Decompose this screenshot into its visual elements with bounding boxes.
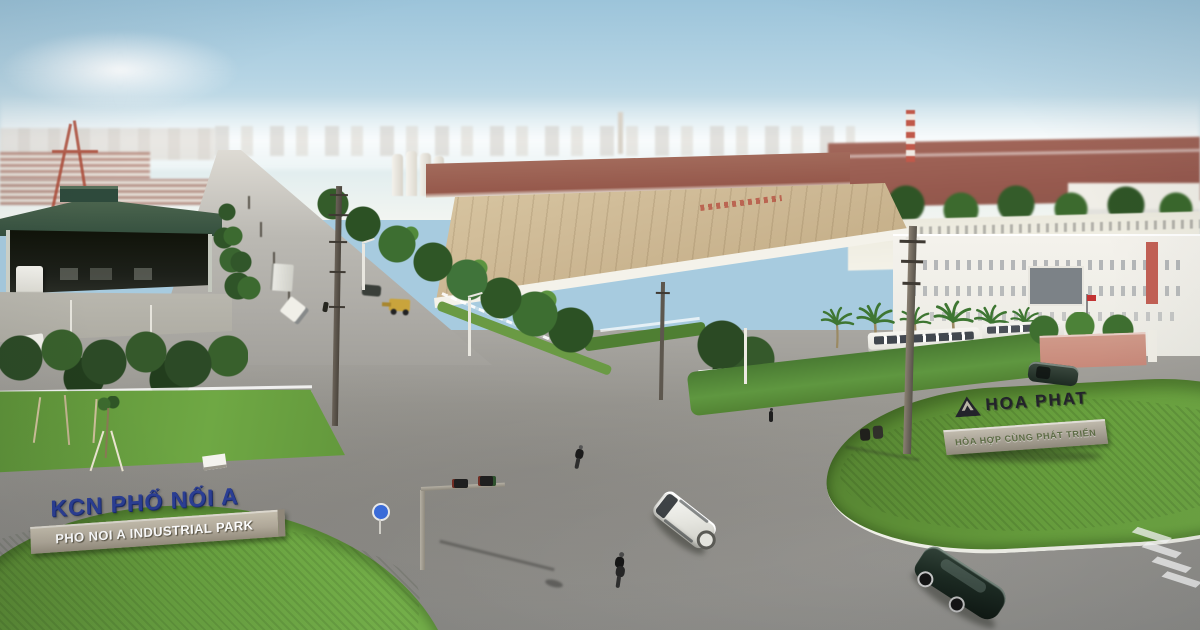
parked-motorbikes [859,423,888,443]
crossarm [902,282,920,285]
tree-stake [90,431,105,472]
trunk [33,397,41,443]
sign-post [379,519,381,534]
red-flag [1087,295,1096,301]
avenue-tree-row [295,172,615,360]
dark-car-entrance [1026,357,1081,393]
young-tree-trunk [105,408,110,458]
avenue-left-trees [215,200,267,302]
box-truck [270,263,294,291]
crossarm [329,241,347,243]
crossarm [901,260,923,264]
crossarm [330,194,348,196]
car-glass [1036,366,1051,380]
warehouse-column [6,230,10,296]
aerial-photo-industrial-park: HOA PHAT HÒA HỢP CÙNG PHÁT TRIỂN KCN PHỐ… [0,0,1200,630]
distant-skyline-center [215,126,855,156]
hoaphat-slogan-text: HÒA HỢP CÙNG PHÁT TRIỂN [954,427,1097,447]
trunk [64,395,70,445]
warehouse-roof-vent [60,186,118,202]
round-road-sign [372,503,390,521]
thin-chimney [618,112,623,154]
red-facade-accent [1146,242,1158,304]
gate-pillar [1148,330,1157,362]
crane-beam [52,150,98,153]
kcn-sign-line2: PHO NOI A INDUSTRIAL PARK [55,517,254,546]
striped-chimney [906,110,915,162]
street-light [744,328,747,384]
bike-body [574,458,580,470]
bike-body [616,576,622,588]
crossarm [329,306,345,308]
insulator [917,237,920,240]
crossarm [656,292,670,294]
crossarm [329,214,349,216]
person-body [769,411,773,422]
traffic-light-pole [420,490,425,570]
bike [873,425,884,439]
crossarm [900,240,926,244]
street-light [362,244,365,290]
crosswalk-stripe [1152,556,1192,573]
street-light [468,298,471,356]
crossarm [330,271,346,273]
hoaphat-sign: HOA PHAT HÒA HỢP CÙNG PHÁT TRIỂN [936,385,1130,468]
traffic-signal-head [452,479,468,488]
insulator [906,237,909,240]
bike [860,428,871,441]
young-tree [92,396,132,476]
hoaphat-logo-icon [954,396,981,418]
warehouse-interior-crates [60,262,200,284]
hoaphat-stone-base: HÒA HỢP CÙNG PHÁT TRIỂN [943,419,1108,455]
crosswalk-stripe [1161,571,1200,588]
crosswalk-stripe [1142,542,1182,559]
pedestrian [768,408,774,424]
traffic-signal-head [478,476,496,486]
tree-stake [110,431,123,472]
